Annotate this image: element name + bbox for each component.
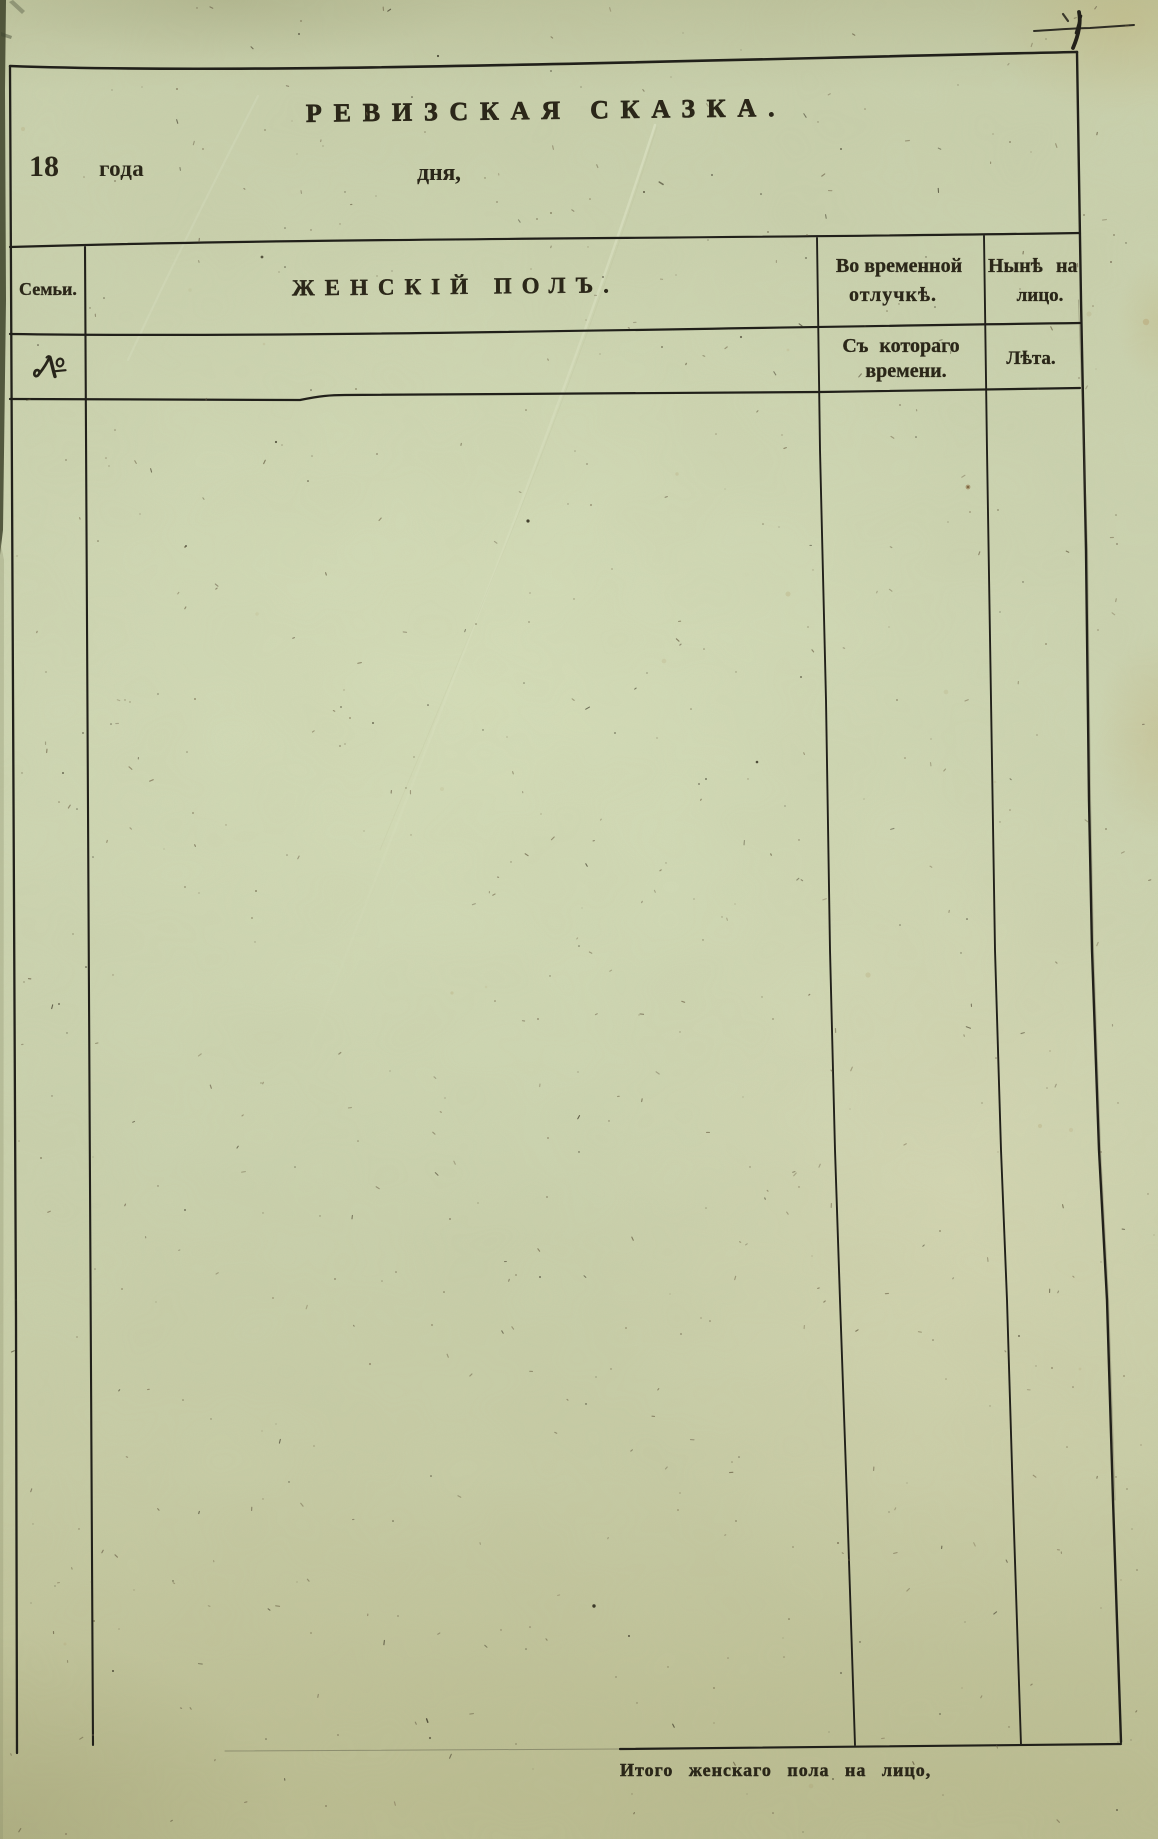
svg-text:18: 18	[29, 150, 59, 183]
svg-text:Нынѣ: Нынѣ	[988, 255, 1043, 277]
svg-text:дня,: дня,	[417, 160, 461, 186]
svg-text:ЖЕНСКІЙ ПОЛЪ.: ЖЕНСКІЙ ПОЛЪ.	[292, 272, 619, 300]
svg-text:Лѣта.: Лѣта.	[1006, 348, 1055, 369]
svg-text:Во временной: Во временной	[836, 255, 962, 277]
svg-text:лицо.: лицо.	[1017, 285, 1064, 306]
svg-text:Семьи.: Семьи.	[19, 279, 77, 299]
svg-text:отлучкѣ.: отлучкѣ.	[849, 284, 937, 306]
svg-text:Итого женскаго пола на лицо,: Итого женскаго пола на лицо,	[620, 1760, 931, 1780]
svg-text:года: года	[99, 156, 144, 181]
svg-text:Съ котораго: Съ котораго	[842, 335, 959, 357]
svg-text:на: на	[1056, 255, 1078, 277]
svg-text:РЕВИЗСКАЯ СКАЗКА.: РЕВИЗСКАЯ СКАЗКА.	[306, 93, 787, 128]
svg-text:времени.: времени.	[865, 360, 946, 382]
